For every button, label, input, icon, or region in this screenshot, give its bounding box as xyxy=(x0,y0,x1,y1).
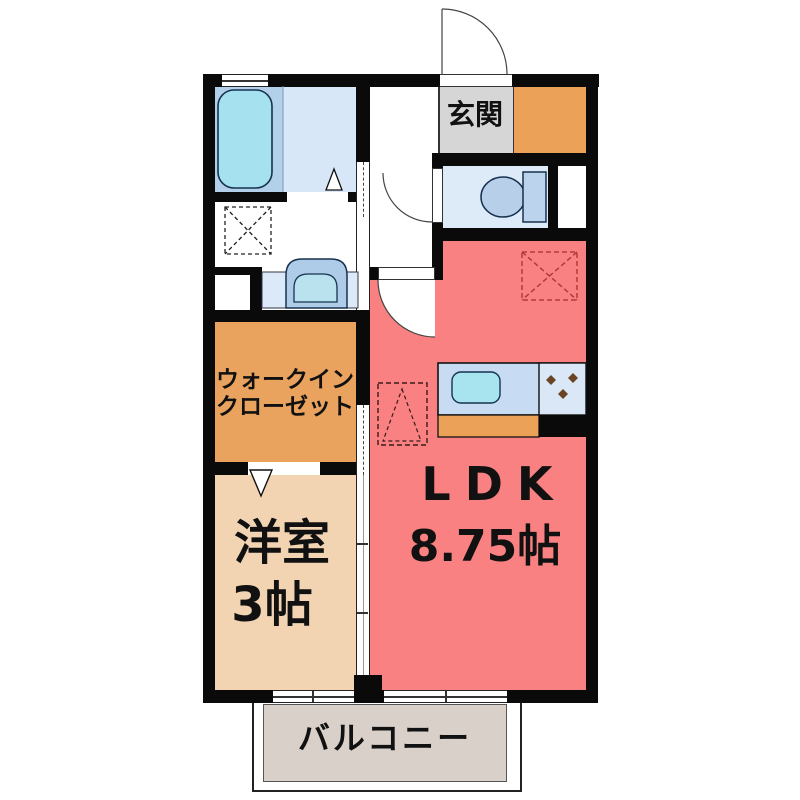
entrance-door-arc xyxy=(442,9,507,74)
wall-niche-top xyxy=(203,267,262,275)
floor-plan: 玄関 ウォークイン クローゼット 洋室 3帖 LDK 8.75帖 バルコニー xyxy=(0,0,800,800)
sliding-door-tick-1 xyxy=(357,543,368,545)
bathroom-door-opening xyxy=(287,192,348,202)
ldk-window xyxy=(384,690,507,703)
western-ldk-sliding-door xyxy=(356,405,370,675)
western-room-size: 3帖 xyxy=(203,580,341,630)
western-window-line xyxy=(273,696,354,698)
walkin-closet-label-line1: ウォークイン xyxy=(205,368,365,392)
toilet-door-arc xyxy=(383,173,432,222)
washroom-sliding-door-line xyxy=(363,162,364,217)
bathroom-floor-light xyxy=(283,86,358,192)
balcony-label: バルコニー xyxy=(285,722,485,756)
washroom-sliding-door xyxy=(356,162,370,217)
western-window-tick xyxy=(312,691,314,702)
washbasin xyxy=(286,259,347,308)
bathroom-window xyxy=(222,74,268,87)
entrance-door-opening xyxy=(440,74,512,87)
washbasin-bowl xyxy=(294,274,337,302)
entrance-label: 玄関 xyxy=(424,100,526,129)
wall-entrance-bottom xyxy=(432,153,586,166)
bathroom-floor xyxy=(215,86,283,192)
ldk-size: 8.75帖 xyxy=(396,524,574,570)
wall-niche-right xyxy=(250,275,262,312)
wall-outer-right xyxy=(586,74,598,703)
wall-washroom-bottom xyxy=(203,310,358,322)
wall-mid-upper xyxy=(356,86,370,162)
washroom-wall-thin xyxy=(356,217,370,310)
hall-ldk-door-leaf xyxy=(378,267,435,280)
sliding-door-tick-2 xyxy=(357,612,368,614)
vanity-counter xyxy=(262,272,358,308)
western-room-window xyxy=(273,690,354,703)
wall-mid-foot xyxy=(354,675,382,691)
walkin-closet-label-line2: クローゼット xyxy=(205,395,365,419)
toilet-door-leaf xyxy=(432,168,443,223)
closet-door-opening xyxy=(248,462,320,475)
toilet-floor xyxy=(443,164,548,230)
bathroom-window-line xyxy=(222,80,268,82)
wall-toilet-bottom xyxy=(443,228,586,241)
wall-toilet-right xyxy=(548,166,558,230)
washing-machine-space xyxy=(225,207,271,254)
sliding-door-rail xyxy=(363,475,364,675)
western-room-name: 洋室 xyxy=(213,518,351,568)
ldk-window-tick xyxy=(445,691,447,702)
ldk-name: LDK xyxy=(398,460,576,508)
